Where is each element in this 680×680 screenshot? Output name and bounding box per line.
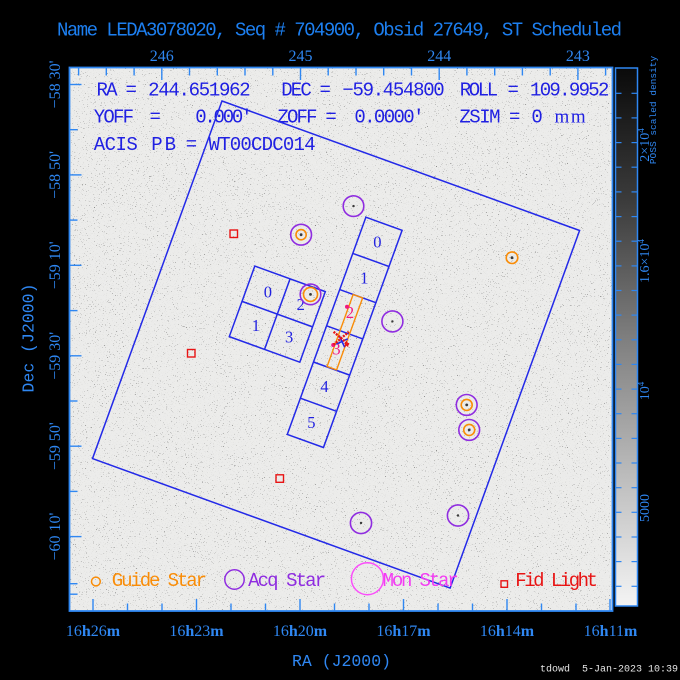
svg-text:0: 0: [531, 107, 542, 129]
svg-text:244: 244: [427, 48, 451, 65]
svg-text:=: =: [150, 107, 161, 129]
svg-text:−59 30': −59 30': [47, 332, 64, 380]
svg-text:246: 246: [150, 48, 174, 65]
svg-text:2×104: 2×104: [636, 128, 653, 162]
svg-text:DEC: DEC: [281, 79, 312, 101]
svg-text:RA (J2000): RA (J2000): [292, 652, 391, 671]
svg-text:Mon Star: Mon Star: [383, 570, 459, 592]
svg-text:−58 50': −58 50': [47, 151, 64, 199]
svg-text:Acq Star: Acq Star: [248, 570, 326, 592]
svg-text:=: =: [325, 107, 336, 129]
svg-text:=: =: [186, 134, 197, 156]
svg-text:=: =: [320, 79, 331, 101]
svg-text:16h20m: 16h20m: [273, 623, 328, 640]
svg-text:=: =: [509, 107, 520, 129]
svg-text:16h11m: 16h11m: [584, 623, 638, 640]
svg-text:m: m: [571, 107, 586, 128]
svg-text:1: 1: [360, 269, 368, 288]
svg-text:16h17m: 16h17m: [376, 623, 431, 640]
svg-text:243: 243: [566, 48, 590, 65]
svg-text:−59 10': −59 10': [47, 241, 64, 289]
svg-text:=: =: [508, 79, 519, 101]
svg-text:tdowd 5-Jan-2023 10:39: tdowd 5-Jan-2023 10:39: [540, 664, 678, 676]
svg-text:245: 245: [289, 48, 313, 65]
svg-text:ROLL: ROLL: [460, 79, 498, 101]
svg-text:WT00CDC014: WT00CDC014: [209, 134, 316, 156]
svg-text:16h14m: 16h14m: [480, 623, 535, 640]
svg-text:4: 4: [320, 377, 328, 396]
svg-text:YOFF: YOFF: [94, 107, 134, 129]
svg-text:=: =: [126, 79, 137, 101]
svg-text:0.0000': 0.0000': [354, 107, 424, 129]
svg-text:1: 1: [252, 316, 260, 335]
svg-text:Guide Star: Guide Star: [112, 570, 207, 592]
svg-text:−60 10': −60 10': [47, 513, 64, 561]
svg-text:0.000': 0.000': [195, 107, 252, 129]
svg-text:244.651962: 244.651962: [148, 79, 251, 101]
svg-text:ACIS: ACIS: [94, 134, 138, 156]
svg-text:5000: 5000: [638, 494, 653, 522]
svg-text:−59.454800: −59.454800: [342, 79, 444, 101]
svg-text:Fid Light: Fid Light: [515, 570, 598, 592]
svg-text:−59 50': −59 50': [47, 422, 64, 470]
svg-text:3: 3: [285, 327, 293, 346]
svg-text:−58 30': −58 30': [47, 60, 64, 108]
svg-text:0: 0: [373, 232, 381, 251]
svg-text:109.9952: 109.9952: [530, 79, 609, 101]
svg-text:16h23m: 16h23m: [169, 623, 224, 640]
svg-text:16h26m: 16h26m: [66, 623, 121, 640]
svg-text:Name LEDA3078020, Seq # 704900: Name LEDA3078020, Seq # 704900, Obsid 27…: [57, 20, 622, 42]
svg-text:m: m: [555, 107, 570, 128]
svg-text:0: 0: [264, 283, 272, 302]
svg-text:ZSIM: ZSIM: [459, 107, 500, 129]
svg-text:Dec (J2000): Dec (J2000): [20, 284, 39, 393]
svg-text:5: 5: [307, 413, 315, 432]
svg-text:1.6×104: 1.6×104: [636, 239, 653, 283]
svg-text:ZOFF: ZOFF: [277, 107, 317, 129]
svg-text:RA: RA: [97, 79, 119, 101]
